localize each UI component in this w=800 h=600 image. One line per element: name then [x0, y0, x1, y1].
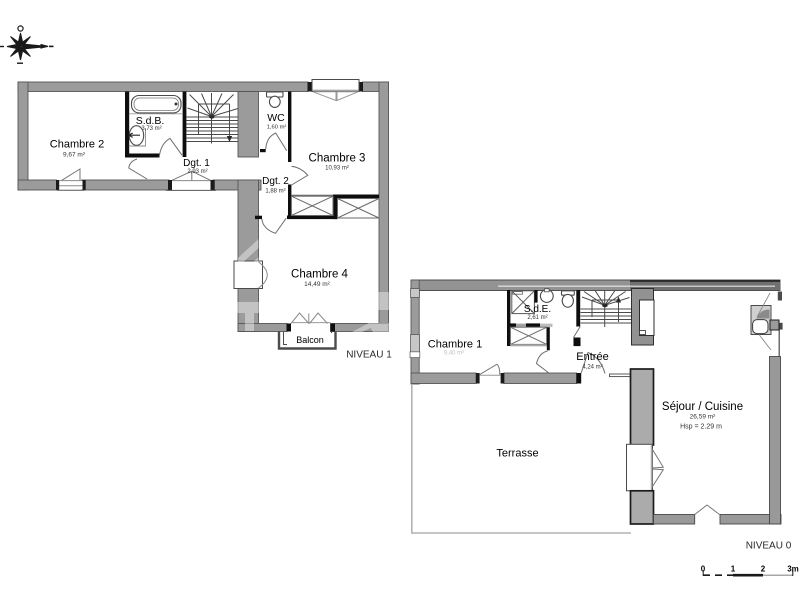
svg-text:4,24 m²: 4,24 m²	[582, 365, 602, 371]
svg-text:S.d.E.: S.d.E.	[524, 304, 551, 315]
svg-text:3m: 3m	[787, 565, 799, 574]
svg-text:1,60 m²: 1,60 m²	[267, 125, 287, 131]
svg-text:Chambre 1: Chambre 1	[428, 339, 482, 351]
svg-text:Entrée: Entrée	[576, 351, 608, 363]
svg-text:2,93 m²: 2,93 m²	[187, 169, 207, 175]
svg-text:Terrasse: Terrasse	[496, 448, 538, 460]
svg-text:0: 0	[701, 565, 706, 574]
svg-text:9,40 m²: 9,40 m²	[444, 351, 464, 357]
svg-text:2,61 m²: 2,61 m²	[527, 315, 547, 321]
svg-text:WC: WC	[267, 112, 285, 124]
svg-text:3,73 m²: 3,73 m²	[141, 126, 161, 132]
svg-text:26,59 m²: 26,59 m²	[690, 414, 716, 421]
svg-text:9,67 m²: 9,67 m²	[63, 152, 86, 159]
svg-text:NIVEAU 1: NIVEAU 1	[346, 350, 392, 361]
svg-text:Hsp = 2.29 m: Hsp = 2.29 m	[680, 424, 722, 431]
svg-text:Chambre 3: Chambre 3	[309, 153, 366, 165]
svg-text:Balcon: Balcon	[296, 335, 324, 345]
svg-text:1,88 m²: 1,88 m²	[265, 189, 285, 195]
svg-text:Séjour / Cuisine: Séjour / Cuisine	[662, 401, 743, 413]
svg-text:NIVEAU 0: NIVEAU 0	[746, 541, 792, 552]
svg-text:Dgt. 2: Dgt. 2	[262, 176, 289, 187]
svg-text:Chambre 2: Chambre 2	[50, 139, 104, 151]
svg-text:14,49 m²: 14,49 m²	[304, 281, 330, 288]
svg-text:Chambre 4: Chambre 4	[291, 269, 348, 281]
svg-text:1: 1	[731, 565, 736, 574]
svg-text:10,93 m²: 10,93 m²	[325, 166, 349, 172]
svg-text:2: 2	[761, 565, 766, 574]
svg-text:Dgt. 1: Dgt. 1	[183, 158, 210, 169]
